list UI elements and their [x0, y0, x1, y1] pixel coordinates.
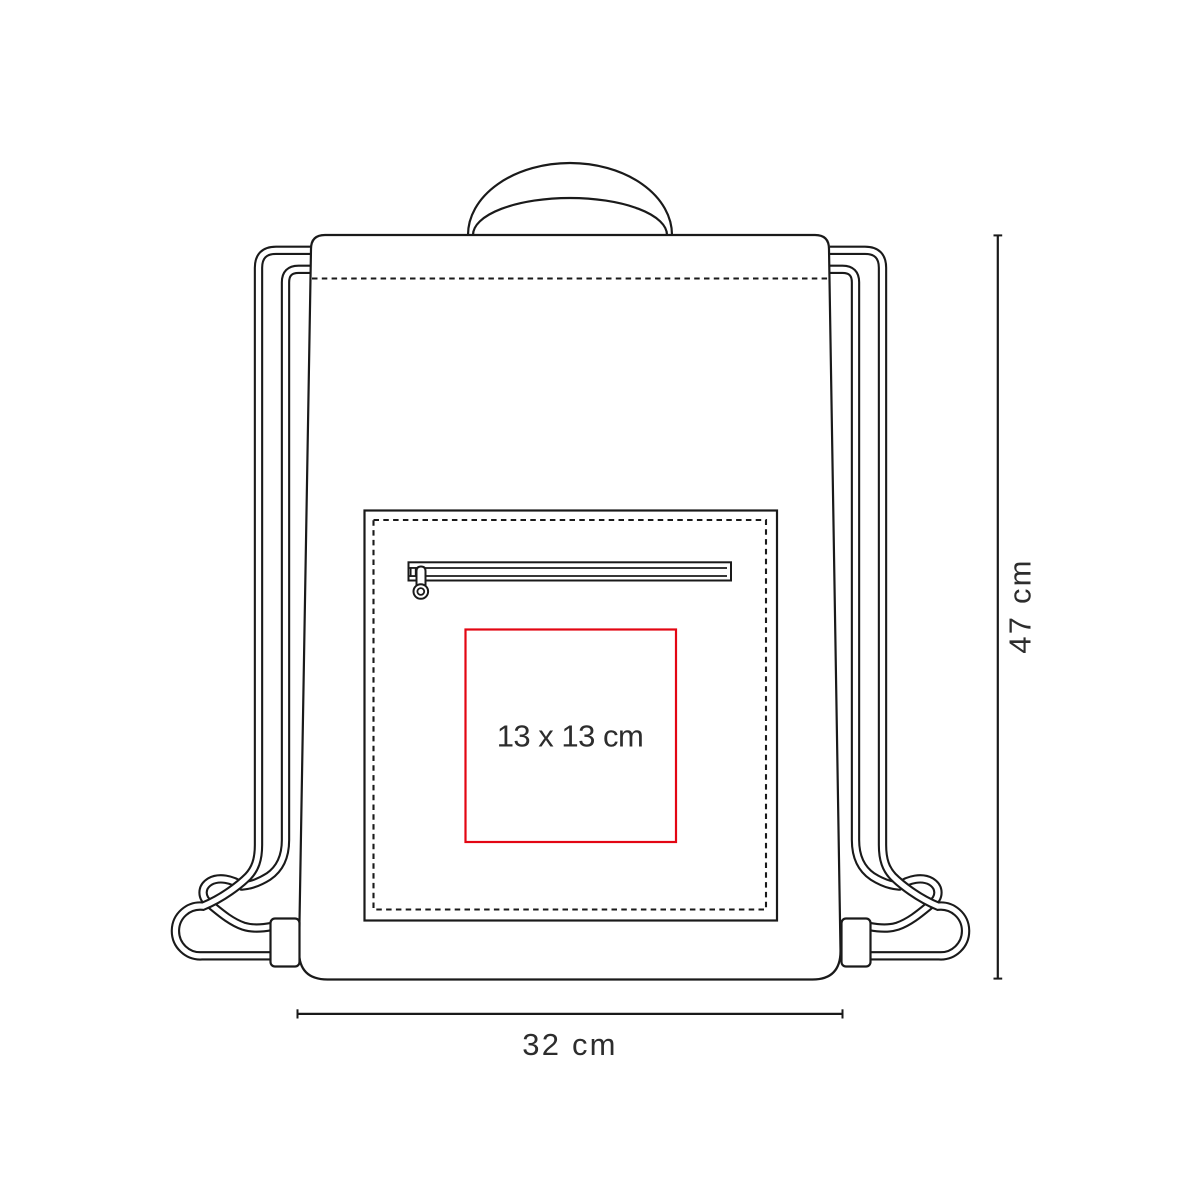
svg-text:13 x 13 cm: 13 x 13 cm — [497, 719, 644, 754]
svg-text:47 cm: 47 cm — [1003, 558, 1038, 653]
svg-text:32 cm: 32 cm — [522, 1027, 617, 1062]
